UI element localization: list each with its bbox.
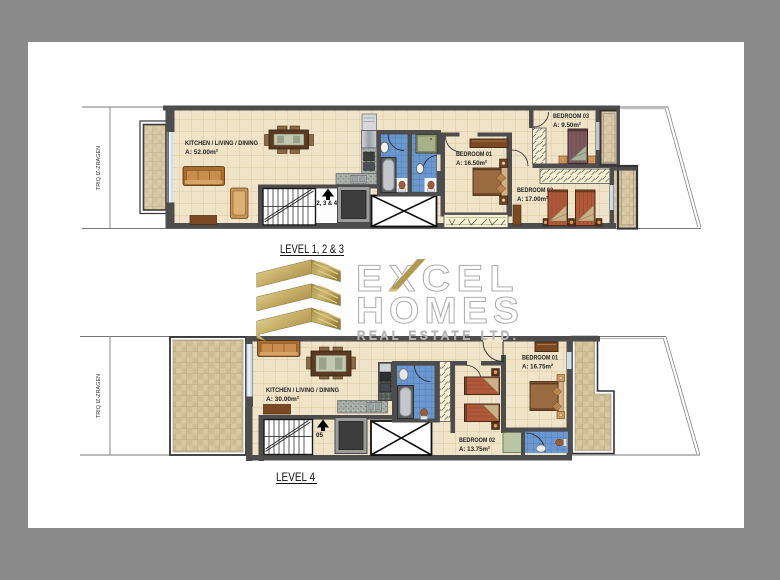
svg-text:TRIQ IZ-ZRAGEN: TRIQ IZ-ZRAGEN — [96, 146, 102, 190]
svg-text:2, 3 & 4: 2, 3 & 4 — [317, 201, 338, 207]
svg-text:BEDROOM 01: BEDROOM 01 — [522, 355, 558, 362]
svg-text:A: 52.00m²: A: 52.00m² — [185, 149, 219, 156]
svg-text:A: 9.50m²: A: 9.50m² — [553, 122, 582, 129]
svg-text:LEVEL 1, 2 & 3: LEVEL 1, 2 & 3 — [280, 242, 344, 256]
svg-text:HOMES: HOMES — [356, 290, 524, 331]
svg-text:A: 17.00m²: A: 17.00m² — [517, 196, 549, 203]
svg-text:BEDROOM 02: BEDROOM 02 — [459, 437, 495, 444]
svg-text:KITCHEN / LIVING / DINING: KITCHEN / LIVING / DINING — [185, 140, 258, 147]
svg-text:A: 13.75m²: A: 13.75m² — [459, 446, 491, 453]
svg-text:A: 30.00m²: A: 30.00m² — [266, 396, 300, 403]
svg-text:LEVEL 4: LEVEL 4 — [276, 470, 315, 484]
svg-text:A: 16.50m²: A: 16.50m² — [456, 160, 488, 167]
svg-text:BEDROOM 03: BEDROOM 03 — [553, 113, 589, 120]
svg-text:KITCHEN / LIVING / DINING: KITCHEN / LIVING / DINING — [266, 387, 339, 394]
svg-text:TRIQ IZ-ZRAGEN: TRIQ IZ-ZRAGEN — [96, 374, 102, 418]
svg-text:A: 16.75m²: A: 16.75m² — [522, 364, 554, 371]
svg-text:05: 05 — [316, 432, 323, 439]
svg-text:BEDROOM 01: BEDROOM 01 — [456, 151, 492, 158]
svg-text:REAL ESTATE LTD.: REAL ESTATE LTD. — [357, 331, 516, 343]
